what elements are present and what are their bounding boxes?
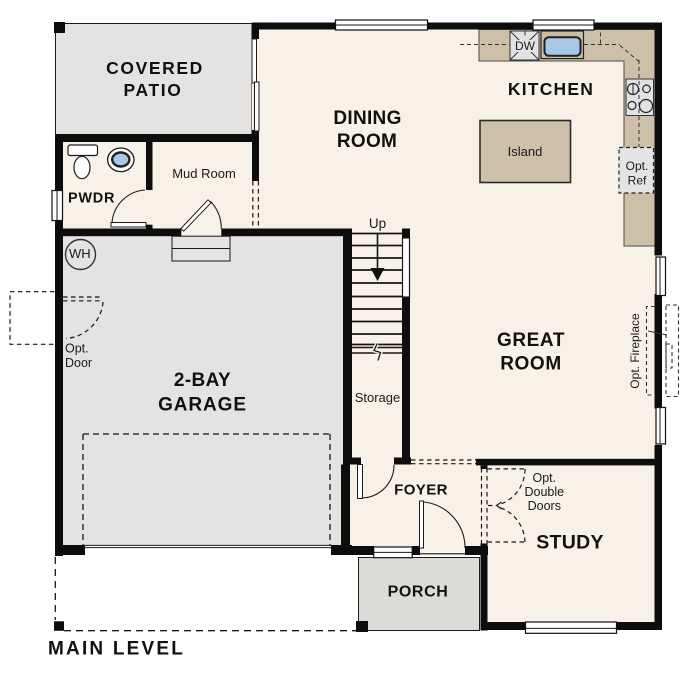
svg-text:Opt.: Opt. <box>65 342 89 356</box>
svg-text:Island: Island <box>508 144 543 159</box>
svg-text:2-BAY: 2-BAY <box>174 370 231 391</box>
svg-text:GREAT: GREAT <box>497 330 565 351</box>
svg-text:FOYER: FOYER <box>394 482 448 499</box>
svg-text:STUDY: STUDY <box>536 532 604 554</box>
svg-text:Door: Door <box>65 356 92 370</box>
svg-text:COVERED: COVERED <box>106 58 204 78</box>
svg-text:ROOM: ROOM <box>337 131 397 152</box>
svg-text:Storage: Storage <box>355 390 401 405</box>
svg-text:Up: Up <box>369 216 386 231</box>
svg-text:Opt.: Opt. <box>532 471 556 485</box>
svg-text:KITCHEN: KITCHEN <box>508 79 594 99</box>
svg-text:DW: DW <box>515 39 536 53</box>
svg-text:PORCH: PORCH <box>388 584 449 601</box>
svg-text:Mud Room: Mud Room <box>172 166 236 181</box>
svg-text:WH: WH <box>69 246 91 261</box>
svg-text:Opt. Fireplace: Opt. Fireplace <box>628 313 642 389</box>
svg-text:ROOM: ROOM <box>500 354 562 375</box>
svg-text:GARAGE: GARAGE <box>158 395 247 416</box>
svg-text:PWDR: PWDR <box>68 191 115 207</box>
svg-text:PATIO: PATIO <box>124 80 183 100</box>
svg-text:DINING: DINING <box>333 108 401 129</box>
svg-text:Ref: Ref <box>628 174 647 188</box>
svg-text:Doors: Doors <box>528 499 561 513</box>
svg-text:Opt.: Opt. <box>626 159 649 173</box>
svg-text:Double: Double <box>524 485 564 499</box>
svg-text:MAIN LEVEL: MAIN LEVEL <box>48 639 185 660</box>
